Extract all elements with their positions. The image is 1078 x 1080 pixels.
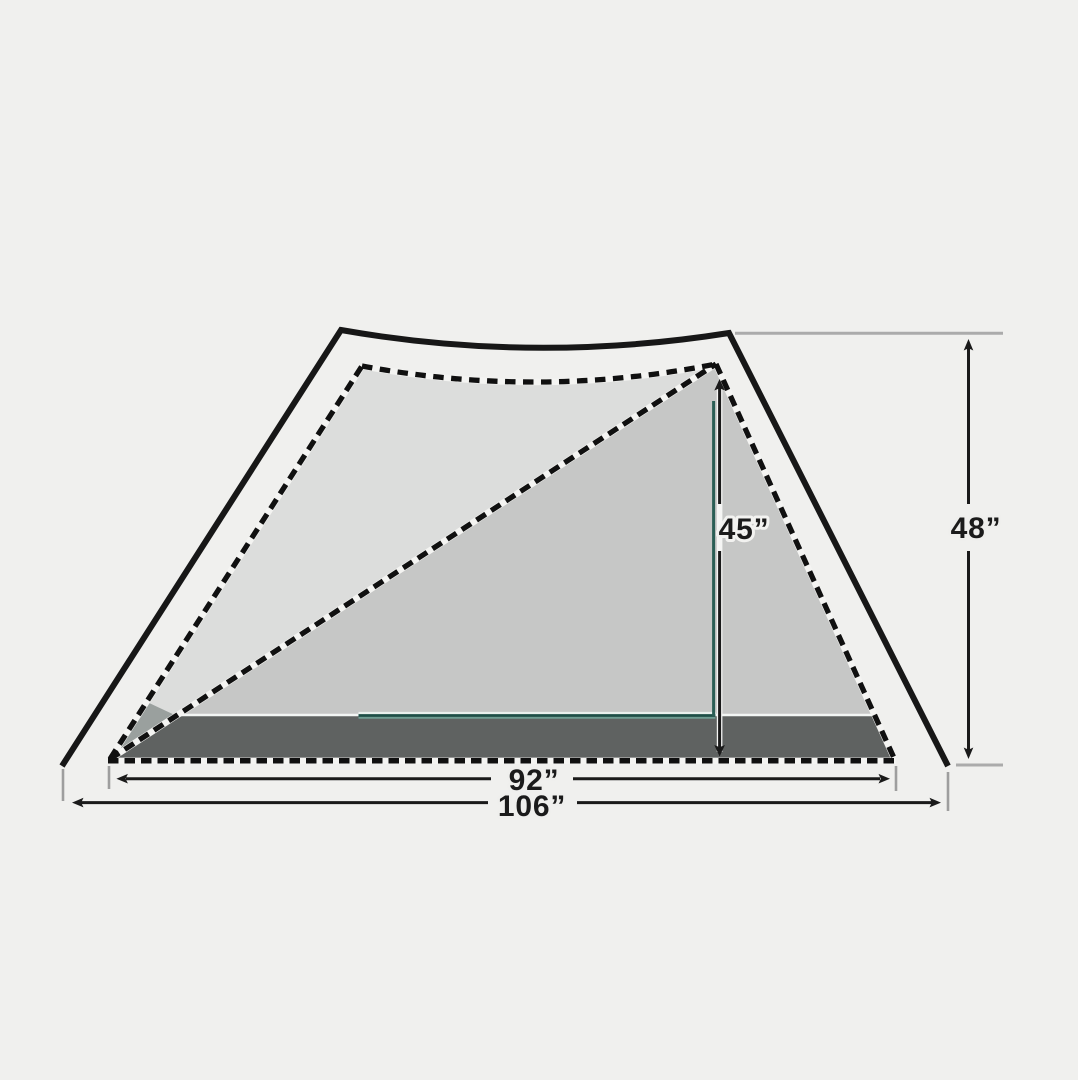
svg-text:48”: 48” (951, 512, 1002, 545)
svg-text:106”: 106” (498, 790, 566, 823)
svg-text:45”: 45” (719, 513, 770, 546)
